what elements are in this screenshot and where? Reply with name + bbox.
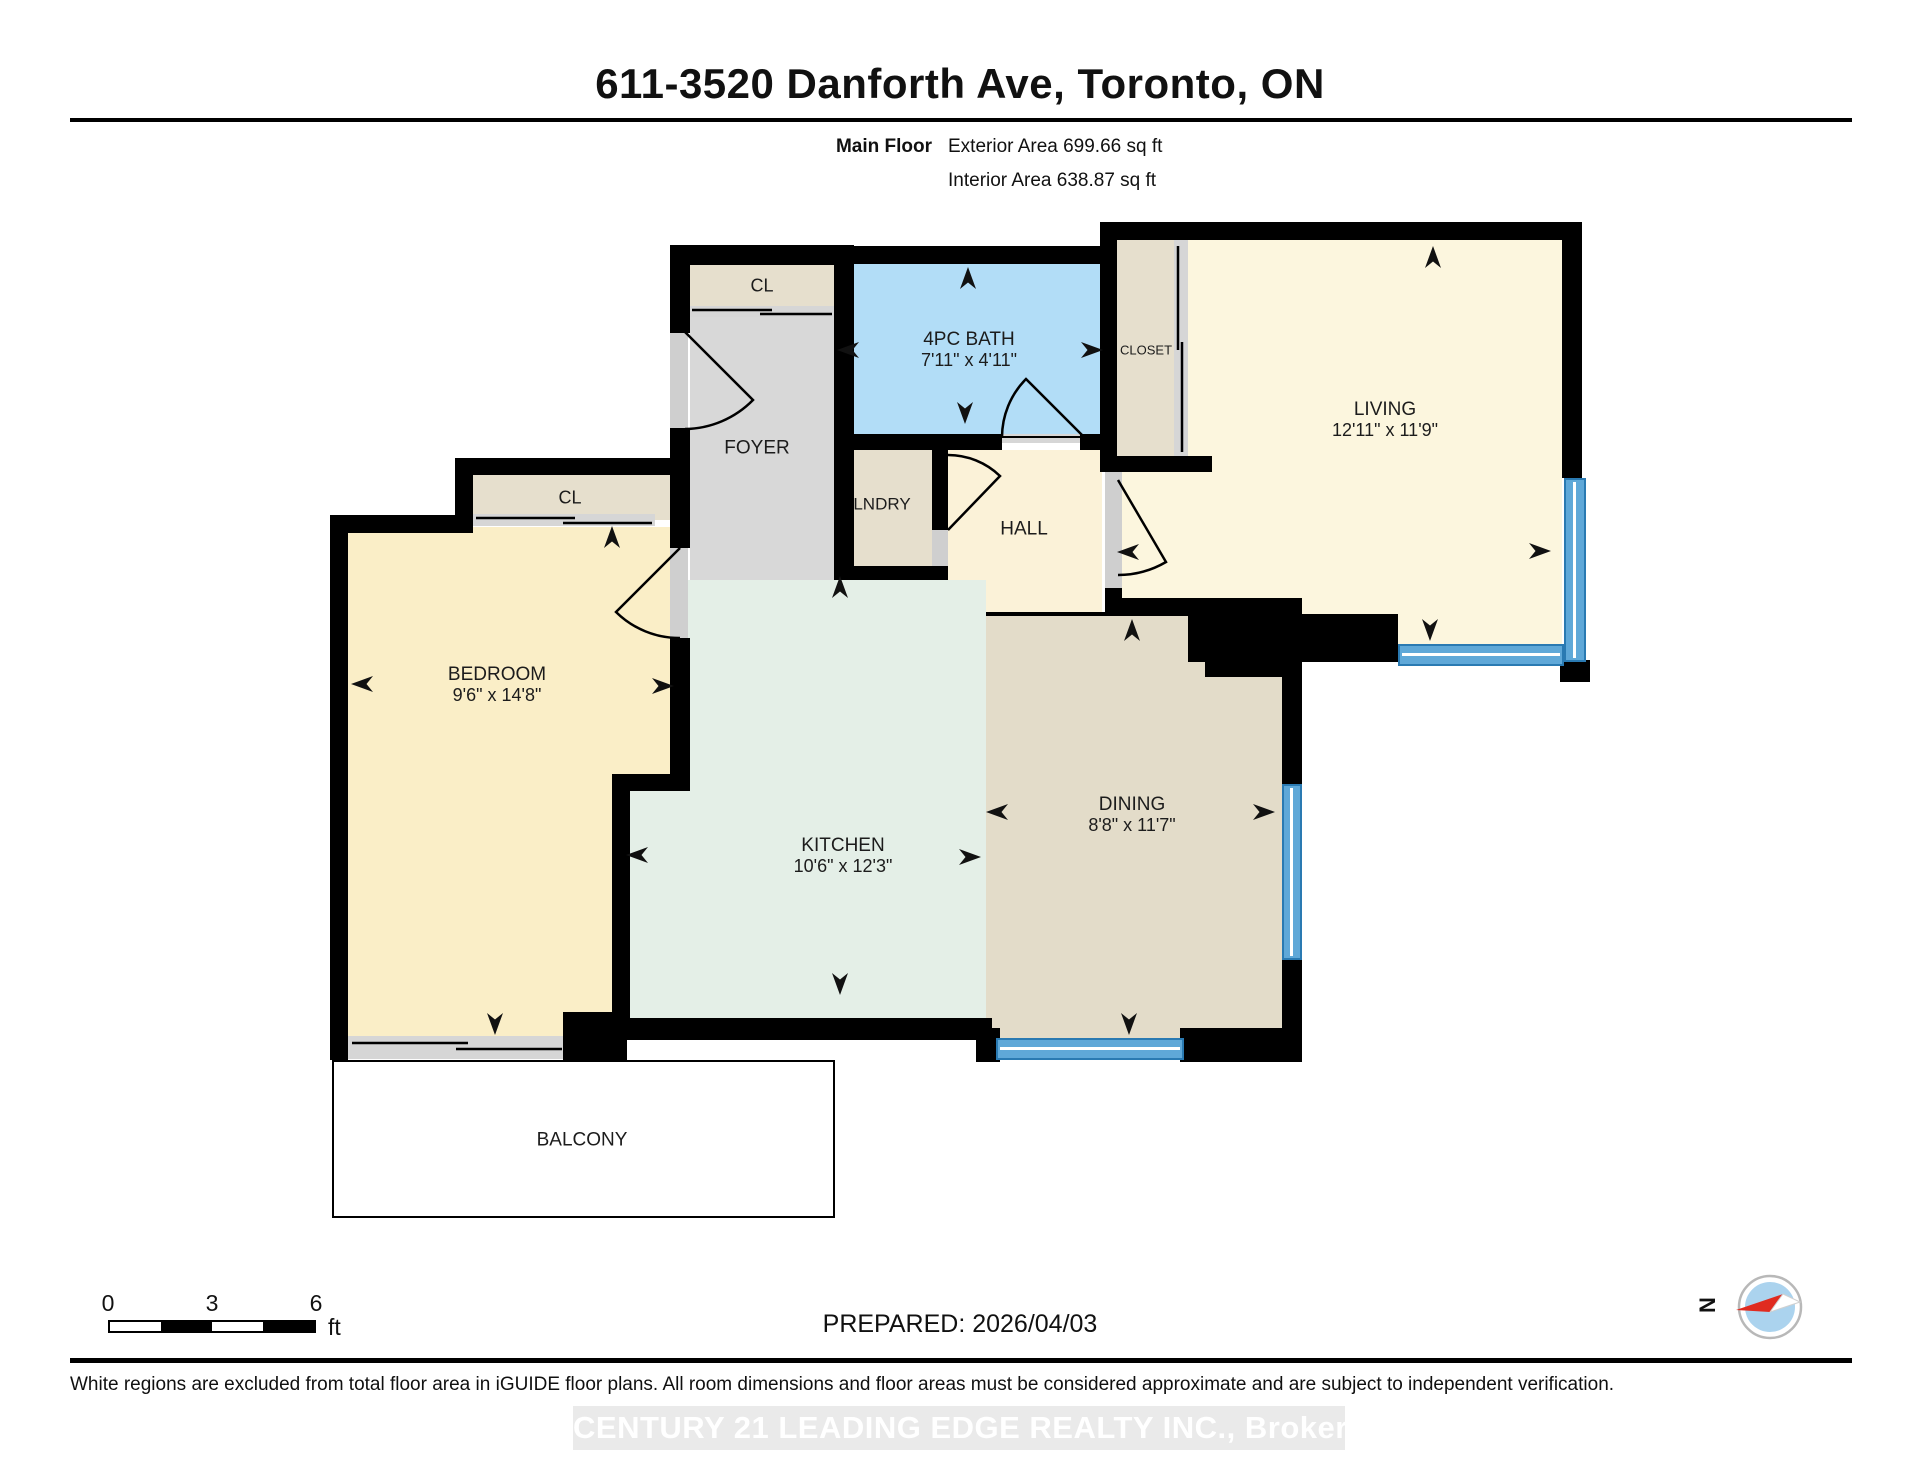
floorplan-page: 611-3520 Danforth Ave, Toronto, ON Main … <box>0 0 1920 1484</box>
room-bedroom-upper <box>348 527 670 777</box>
bedroom-closet-track <box>473 514 655 526</box>
brokerage-watermark: CENTURY 21 LEADING EDGE REALTY INC., Bro… <box>573 1406 1345 1450</box>
bath-door-sill <box>1000 434 1082 443</box>
wall <box>1282 672 1302 784</box>
wall <box>1560 660 1590 682</box>
hall-label: HALL <box>1000 519 1048 540</box>
wall <box>330 515 348 1060</box>
living-closet-track <box>1174 240 1188 456</box>
foyer-label: FOYER <box>724 438 789 459</box>
room-living-doorway <box>1122 472 1188 598</box>
dining-dims: 8'8" x 11'7" <box>1088 815 1175 836</box>
wall <box>834 245 854 580</box>
wall <box>672 245 852 265</box>
wall <box>1180 1028 1302 1062</box>
wall <box>932 450 948 530</box>
wall <box>670 482 690 548</box>
kitchen-name: KITCHEN <box>794 835 893 856</box>
living-bottom-window <box>1398 644 1564 666</box>
balcony-slider-track <box>348 1036 566 1059</box>
dining-label: DINING 8'8" x 11'7" <box>1088 794 1175 836</box>
living-door-jamb <box>1105 472 1122 590</box>
living-label: LIVING 12'11" x 11'9" <box>1332 399 1438 441</box>
room-kitchen <box>688 580 986 1020</box>
wall <box>670 638 690 790</box>
kitchen-label: KITCHEN 10'6" x 12'3" <box>794 835 893 877</box>
compass-north-label: N <box>1695 1297 1721 1313</box>
wall <box>563 1012 627 1062</box>
bedroom-label: BEDROOM 9'6" x 14'8" <box>448 664 546 706</box>
wall <box>1282 958 1302 1038</box>
bedroom-dims: 9'6" x 14'8" <box>448 685 546 706</box>
prepared-date: PREPARED: 2026/04/03 <box>0 1310 1920 1339</box>
dining-side-window <box>1282 784 1302 960</box>
footer-divider <box>70 1358 1852 1363</box>
wall <box>852 434 1002 450</box>
header-divider <box>70 118 1852 122</box>
wall <box>612 774 630 1022</box>
floor-label: Main Floor <box>640 136 932 158</box>
bath-label: 4PC BATH 7'11" x 4'11" <box>921 329 1017 371</box>
wall <box>834 566 948 580</box>
wall <box>455 458 673 475</box>
bedroom-name: BEDROOM <box>448 664 546 685</box>
living-name: LIVING <box>1332 399 1438 420</box>
living-side-window <box>1564 478 1586 662</box>
dining-bottom-window <box>996 1038 1184 1060</box>
room-bedroom-lower <box>348 777 612 1037</box>
wall <box>1100 456 1212 472</box>
wall <box>670 245 690 333</box>
laundry-door-jamb <box>932 528 948 570</box>
entry-door-jamb <box>670 331 688 430</box>
wall <box>1100 222 1582 240</box>
wall <box>670 428 690 482</box>
wall <box>1100 240 1117 472</box>
wall <box>455 458 473 520</box>
bath-name: 4PC BATH <box>921 329 1017 350</box>
wall <box>590 1018 992 1040</box>
bedroom-closet-label: CL <box>558 488 581 509</box>
closet-label: CLOSET <box>1120 340 1172 361</box>
living-dims: 12'11" x 11'9" <box>1332 420 1438 441</box>
balcony-label: BALCONY <box>537 1130 628 1151</box>
laundry-label: LNDRY <box>853 494 910 515</box>
wall-thin-divider <box>986 612 1110 616</box>
room-kitchen-step <box>630 790 690 1020</box>
dining-name: DINING <box>1088 794 1175 815</box>
wall <box>1188 614 1398 662</box>
page-title: 611-3520 Danforth Ave, Toronto, ON <box>0 60 1920 108</box>
exterior-area: Exterior Area 699.66 sq ft <box>948 136 1162 158</box>
wall <box>852 246 1117 264</box>
wall <box>1080 434 1102 450</box>
disclaimer-text: White regions are excluded from total fl… <box>70 1374 1630 1396</box>
entry-closet-label: CL <box>750 276 773 297</box>
bedroom-door-jamb <box>670 546 688 640</box>
interior-area: Interior Area 638.87 sq ft <box>948 170 1156 192</box>
wall <box>1562 222 1582 478</box>
wall <box>330 515 473 533</box>
kitchen-dims: 10'6" x 12'3" <box>794 856 893 877</box>
bath-dims: 7'11" x 4'11" <box>921 350 1017 371</box>
entry-closet-track <box>690 306 834 317</box>
compass-icon <box>1728 1272 1812 1344</box>
